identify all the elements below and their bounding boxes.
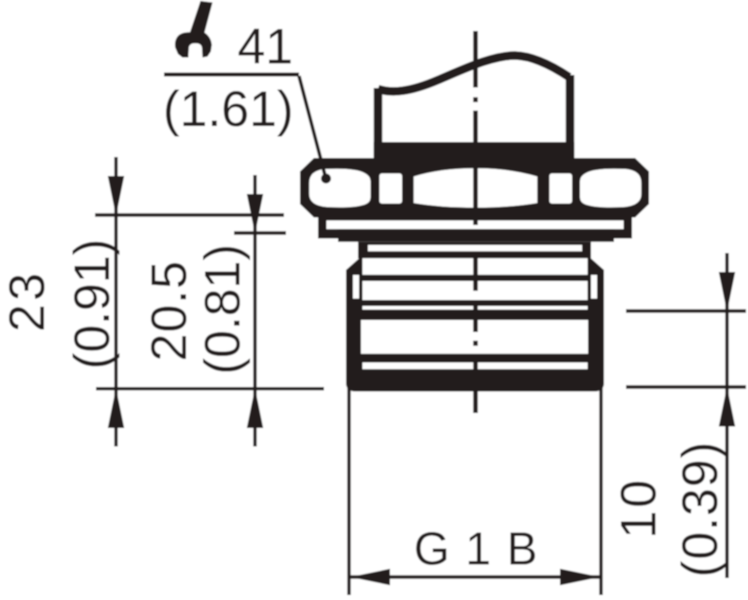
svg-text:(0.39): (0.39) — [672, 441, 728, 578]
svg-text:41: 41 — [238, 19, 294, 75]
svg-text:23: 23 — [0, 269, 55, 332]
svg-text:(0.81): (0.81) — [195, 244, 251, 375]
svg-text:10: 10 — [611, 477, 667, 539]
svg-text:(0.91): (0.91) — [64, 239, 120, 370]
svg-text:(1.61): (1.61) — [163, 81, 294, 137]
svg-text:G 1 B: G 1 B — [414, 523, 539, 575]
svg-text:20.5: 20.5 — [141, 260, 197, 361]
